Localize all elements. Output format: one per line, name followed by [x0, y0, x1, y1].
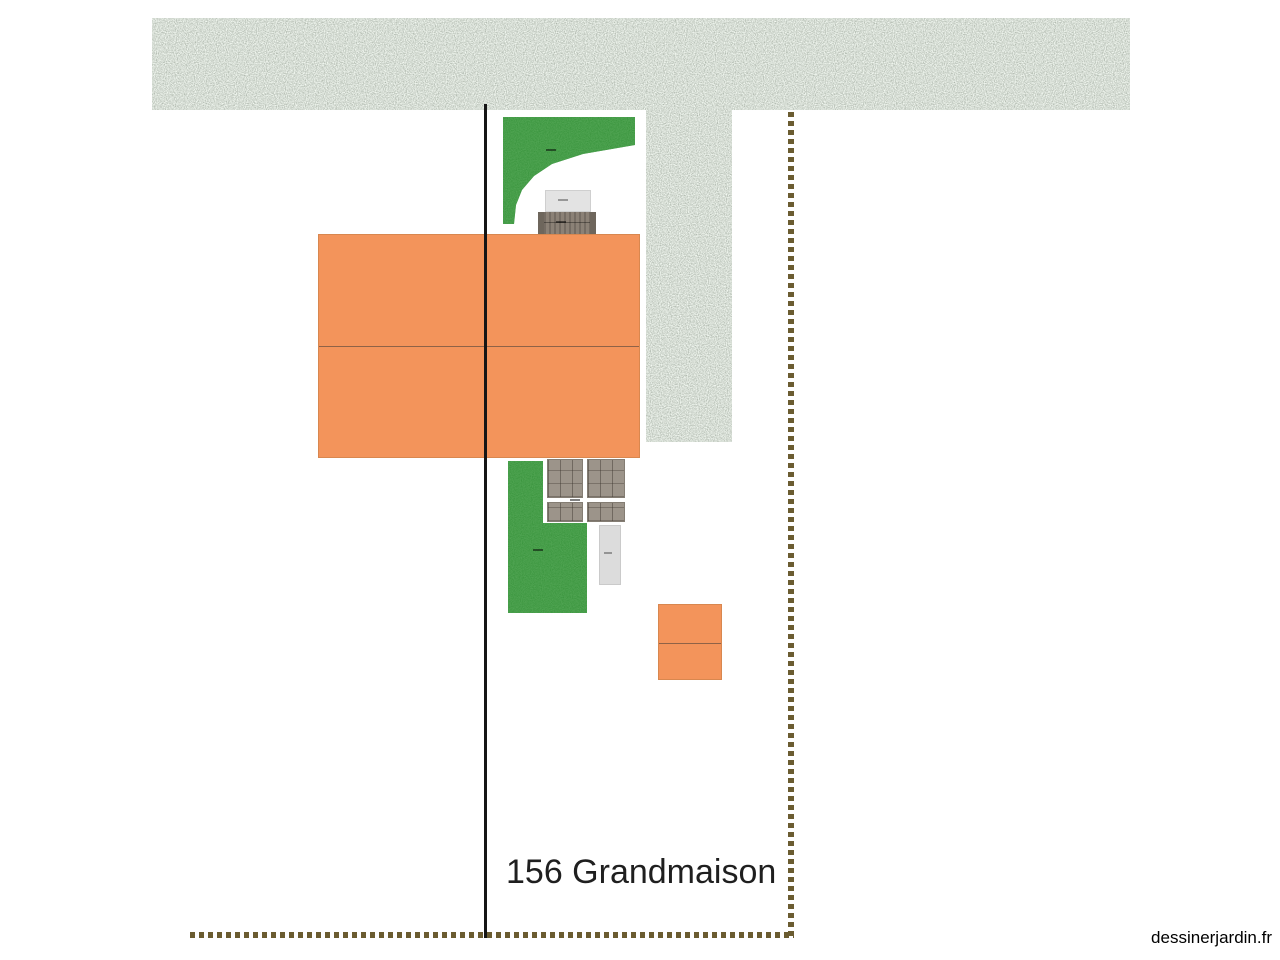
address-label[interactable]: 156 Grandmaison: [506, 853, 776, 892]
garden-plan-canvas: 156 Grandmaison dessinerjardin.fr: [0, 0, 1280, 960]
paving-tiles[interactable]: [547, 459, 625, 522]
illegible-label-mark: [604, 552, 612, 554]
paving-tile-block[interactable]: [547, 459, 583, 498]
steps-light[interactable]: [545, 190, 591, 212]
gravel-noise-texture: [152, 18, 1130, 110]
gravel-noise-texture: [646, 110, 732, 442]
steps-edge-line: [544, 222, 590, 223]
illegible-label-mark: [533, 549, 543, 551]
illegible-label-mark: [556, 221, 566, 223]
building-annex[interactable]: [658, 604, 722, 680]
illegible-label-mark: [546, 149, 556, 151]
gravel-band-vertical[interactable]: [646, 110, 732, 442]
illegible-label-mark: [558, 199, 568, 201]
building-main[interactable]: [318, 234, 640, 458]
paving-tile-block[interactable]: [587, 502, 625, 522]
garage-small[interactable]: [599, 525, 621, 585]
steps-dark[interactable]: [538, 212, 596, 234]
watermark-text: dessinerjardin.fr: [1151, 928, 1272, 948]
gravel-band-top[interactable]: [152, 18, 1130, 110]
building-ridge-line: [319, 346, 639, 347]
boundary-dash-vertical[interactable]: [788, 112, 794, 938]
paving-tile-block[interactable]: [587, 459, 625, 498]
property-line[interactable]: [484, 104, 487, 938]
boundary-dash-horizontal[interactable]: [190, 932, 794, 938]
paving-tile-block[interactable]: [547, 502, 583, 522]
building-ridge-line: [659, 643, 721, 644]
illegible-label-mark: [570, 499, 580, 501]
